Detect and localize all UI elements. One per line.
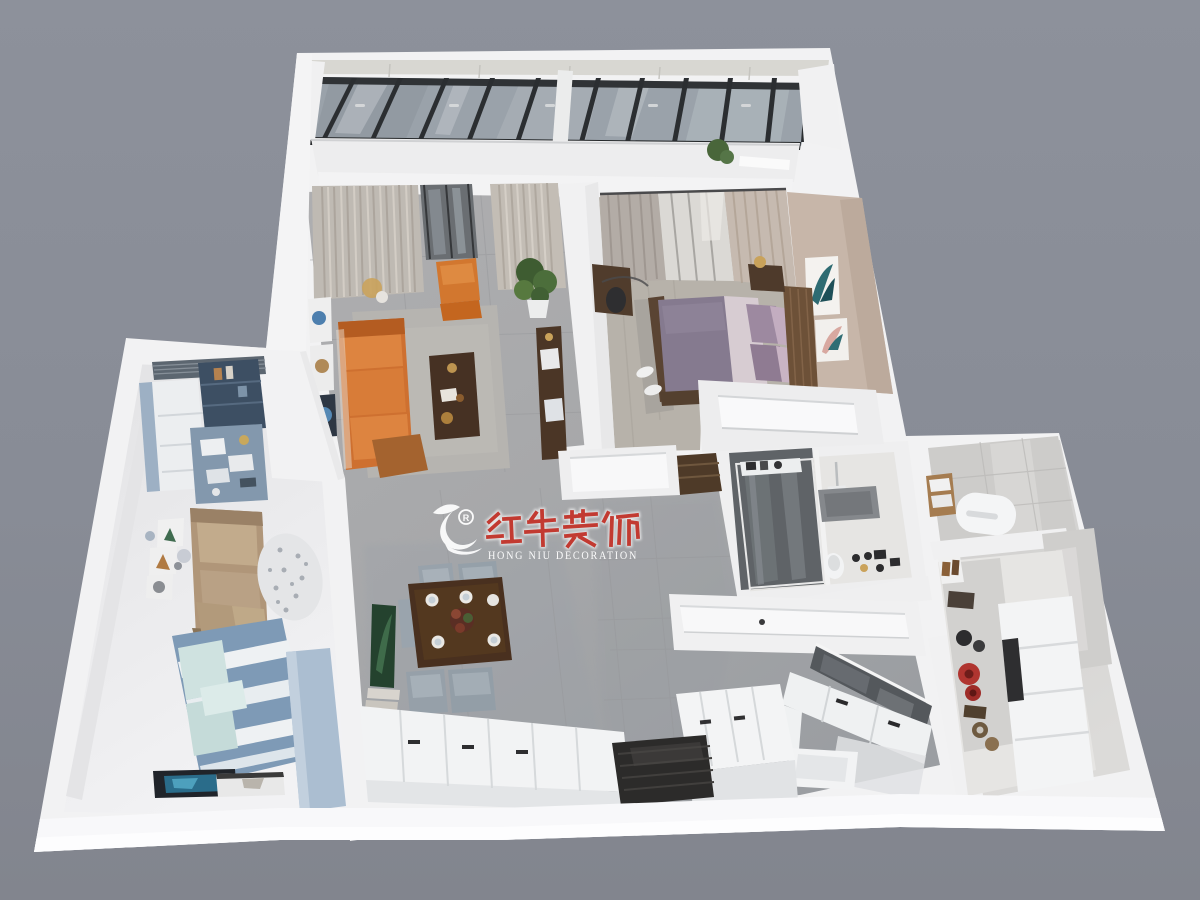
svg-text:HONG NIU DECORATION: HONG NIU DECORATION bbox=[488, 548, 638, 562]
svg-text:R: R bbox=[463, 513, 470, 523]
